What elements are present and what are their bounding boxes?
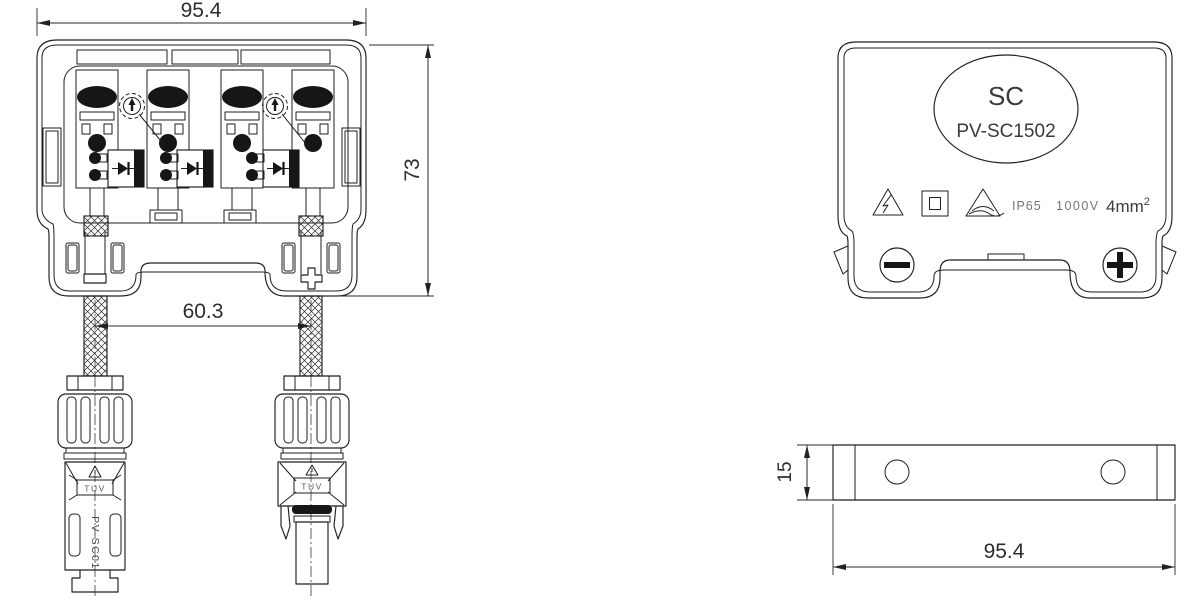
dim-cable-pitch-label: 60.3 xyxy=(183,300,224,323)
technical-drawing-page: TUV PV-SC01 TUV 95.4 xyxy=(0,0,1196,606)
bypass-diode-1 xyxy=(108,150,144,187)
bypass-diode-3 xyxy=(263,150,299,187)
contact-shaft xyxy=(296,522,328,584)
model-text: PV-SC1502 xyxy=(956,121,1055,142)
brand-text: SC xyxy=(988,81,1024,111)
dim-rail-height-label: 15 xyxy=(775,461,796,482)
minus-marking xyxy=(84,274,106,283)
side-view: 15 95.4 xyxy=(775,445,1175,575)
gland-stems xyxy=(90,188,320,216)
front-view: TUV PV-SC01 TUV 95.4 xyxy=(37,0,434,598)
plus-marking xyxy=(301,268,322,289)
rating-symbols: IP65 1000V 4mm2 xyxy=(873,189,1150,216)
cable-left-braid xyxy=(84,296,107,376)
wire-section-text: 4mm2 xyxy=(1106,196,1150,216)
rail-outline xyxy=(833,445,1175,500)
minus-slot xyxy=(884,262,910,268)
terminal-pins-1 xyxy=(89,152,107,181)
gland-left xyxy=(84,216,108,236)
connector-female: TUV PV-SC01 xyxy=(58,376,132,592)
plus-slot xyxy=(1107,252,1133,278)
cert-triangle-icon xyxy=(306,465,318,475)
latch-prong-left xyxy=(281,506,290,539)
cable-centerlines xyxy=(95,300,311,598)
ip-rating-text: IP65 xyxy=(1012,199,1042,213)
latch-prong-right xyxy=(334,506,343,539)
lobe-negative xyxy=(66,232,124,274)
terminal-pins-2 xyxy=(160,152,178,181)
terminal-screws xyxy=(880,248,1137,282)
mounting-hole-left xyxy=(885,460,909,484)
dim-height-label: 73 xyxy=(401,158,424,181)
rail-end-lines xyxy=(855,445,1157,500)
dim-rail-width-label: 95.4 xyxy=(984,540,1025,563)
bypass-diode-2 xyxy=(177,150,213,187)
electric-shock-warning-icon xyxy=(873,189,903,215)
connector-male: TUV xyxy=(275,376,349,584)
cert-label: TUV xyxy=(301,482,323,492)
middle-feet xyxy=(150,188,256,223)
back-view: SC PV-SC1502 IP65 1000V 4mm2 xyxy=(834,42,1176,298)
voltage-rating-text: 1000V xyxy=(1056,199,1100,213)
connector-model-label: PV-SC01 xyxy=(89,516,101,570)
dim-width-label: 95.4 xyxy=(181,0,222,22)
cover-screw-left xyxy=(120,94,145,119)
class-ii-insulation-icon xyxy=(922,191,948,216)
bridge-tab xyxy=(988,254,1024,260)
mounting-hole-right xyxy=(1101,460,1125,484)
cover-screw-right xyxy=(263,94,288,119)
gland-nut xyxy=(284,376,340,390)
drawing-canvas: TUV PV-SC01 TUV 95.4 xyxy=(0,0,1196,606)
cable-right-braid xyxy=(300,296,322,376)
side-dimensions: 15 95.4 xyxy=(775,445,1175,575)
gland-right xyxy=(299,216,323,236)
terminal-3 xyxy=(221,70,263,188)
terminal-pins-3 xyxy=(246,152,264,181)
o-ring-seal xyxy=(292,505,332,514)
cert-label: TUV xyxy=(84,484,106,494)
ribbed-coupling-nut xyxy=(275,394,349,459)
caution-triangle-icon xyxy=(966,189,1004,216)
cover-clips xyxy=(77,50,330,64)
